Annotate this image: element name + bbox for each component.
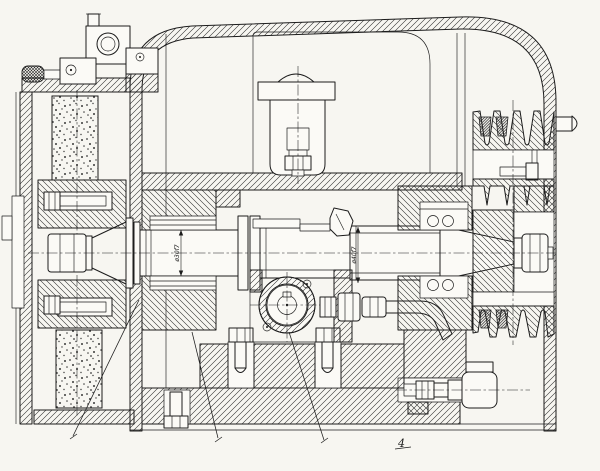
side-pin bbox=[556, 116, 577, 131]
foot-bolt bbox=[164, 390, 190, 428]
oil-pump bbox=[250, 270, 352, 342]
dim-left-text: ø30f7 bbox=[174, 244, 181, 262]
dim-center-text: ø40f7 bbox=[351, 246, 358, 264]
engineering-drawing: ø30f7 ø40f7 4 bbox=[0, 0, 600, 471]
v-belt-pulley bbox=[473, 100, 554, 345]
oil-cup bbox=[258, 66, 335, 184]
drawing-page: ø30f7 ø40f7 4 bbox=[0, 0, 600, 471]
